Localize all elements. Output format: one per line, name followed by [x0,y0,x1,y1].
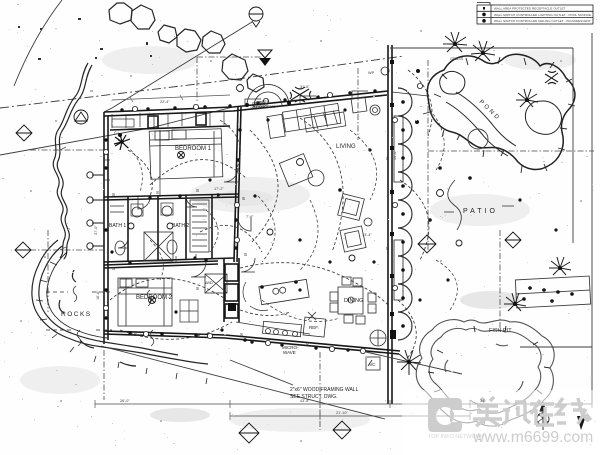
svg-text:ROCKS: ROCKS [61,311,92,318]
svg-text:S: S [386,156,389,161]
svg-text:WAVE: WAVE [283,350,296,355]
svg-text:GRASS: GRASS [450,57,464,61]
svg-text:POND: POND [478,99,502,122]
svg-text:7'-6": 7'-6" [246,215,254,219]
svg-text:S: S [112,266,115,271]
svg-text:22'-4": 22'-4" [160,100,170,104]
svg-text:S: S [306,342,309,347]
svg-text:BEDROOM 2: BEDROOM 2 [136,295,173,301]
svg-text:WALL SWITCH CONTROLLED LIGHTIN: WALL SWITCH CONTROLLED LIGHTING OUTLET -… [494,13,591,17]
svg-text:www.m6699.com: www.m6699.com [472,429,593,446]
svg-text:S: S [386,246,389,251]
svg-text:13'-4": 13'-4" [362,233,372,237]
svg-text:31'-6": 31'-6" [300,85,310,89]
svg-text:W/D: W/D [205,280,213,285]
svg-text:S: S [244,252,247,257]
svg-text:BATH 2: BATH 2 [172,223,189,229]
svg-text:S: S [242,196,245,201]
svg-text:PATIO: PATIO [463,208,498,215]
svg-text:S: S [240,332,243,337]
svg-text:LIVING: LIVING [336,144,356,150]
svg-text:21'-10": 21'-10" [336,411,348,415]
svg-text:WP: WP [368,71,375,75]
svg-text:34': 34' [480,399,485,403]
svg-text:26'-0": 26'-0" [120,399,130,403]
svg-text:2"x6" WOOD FRAMING WALL: 2"x6" WOOD FRAMING WALL [290,387,359,393]
svg-text:16'-8": 16'-8" [96,290,100,300]
svg-text:BEDROOM 1: BEDROOM 1 [175,146,212,152]
svg-text:REF.: REF. [309,325,319,330]
svg-text:C.L.: C.L. [114,131,121,135]
svg-text:37'-0": 37'-0" [94,225,98,235]
svg-text:BATH 1: BATH 1 [109,223,126,229]
svg-text:40'-6": 40'-6" [393,150,397,160]
svg-text:DINING: DINING [344,298,363,304]
svg-text:17'-2": 17'-2" [214,187,224,191]
svg-text:SEE STRUCT. DWG.: SEE STRUCT. DWG. [290,394,338,400]
svg-text:S: S [196,188,199,193]
svg-text:S: S [196,286,199,291]
svg-text:43'-8": 43'-8" [300,399,310,403]
svg-text:WALL SWITCH CONTROLLED CEILING: WALL SWITCH CONTROLLED CEILING OUTLET - … [494,19,591,23]
svg-text:S: S [134,332,137,337]
svg-text:WALL AREA PROTECTED RECEPTACLE: WALL AREA PROTECTED RECEPTACLE OUTLET [494,7,566,11]
svg-text:A/C: A/C [368,362,376,367]
svg-text:S: S [112,192,115,197]
svg-text:TOP INFO NETWORK: TOP INFO NETWORK [428,434,484,440]
svg-text:FISH PIT: FISH PIT [489,328,512,334]
svg-text:S: S [156,190,159,195]
